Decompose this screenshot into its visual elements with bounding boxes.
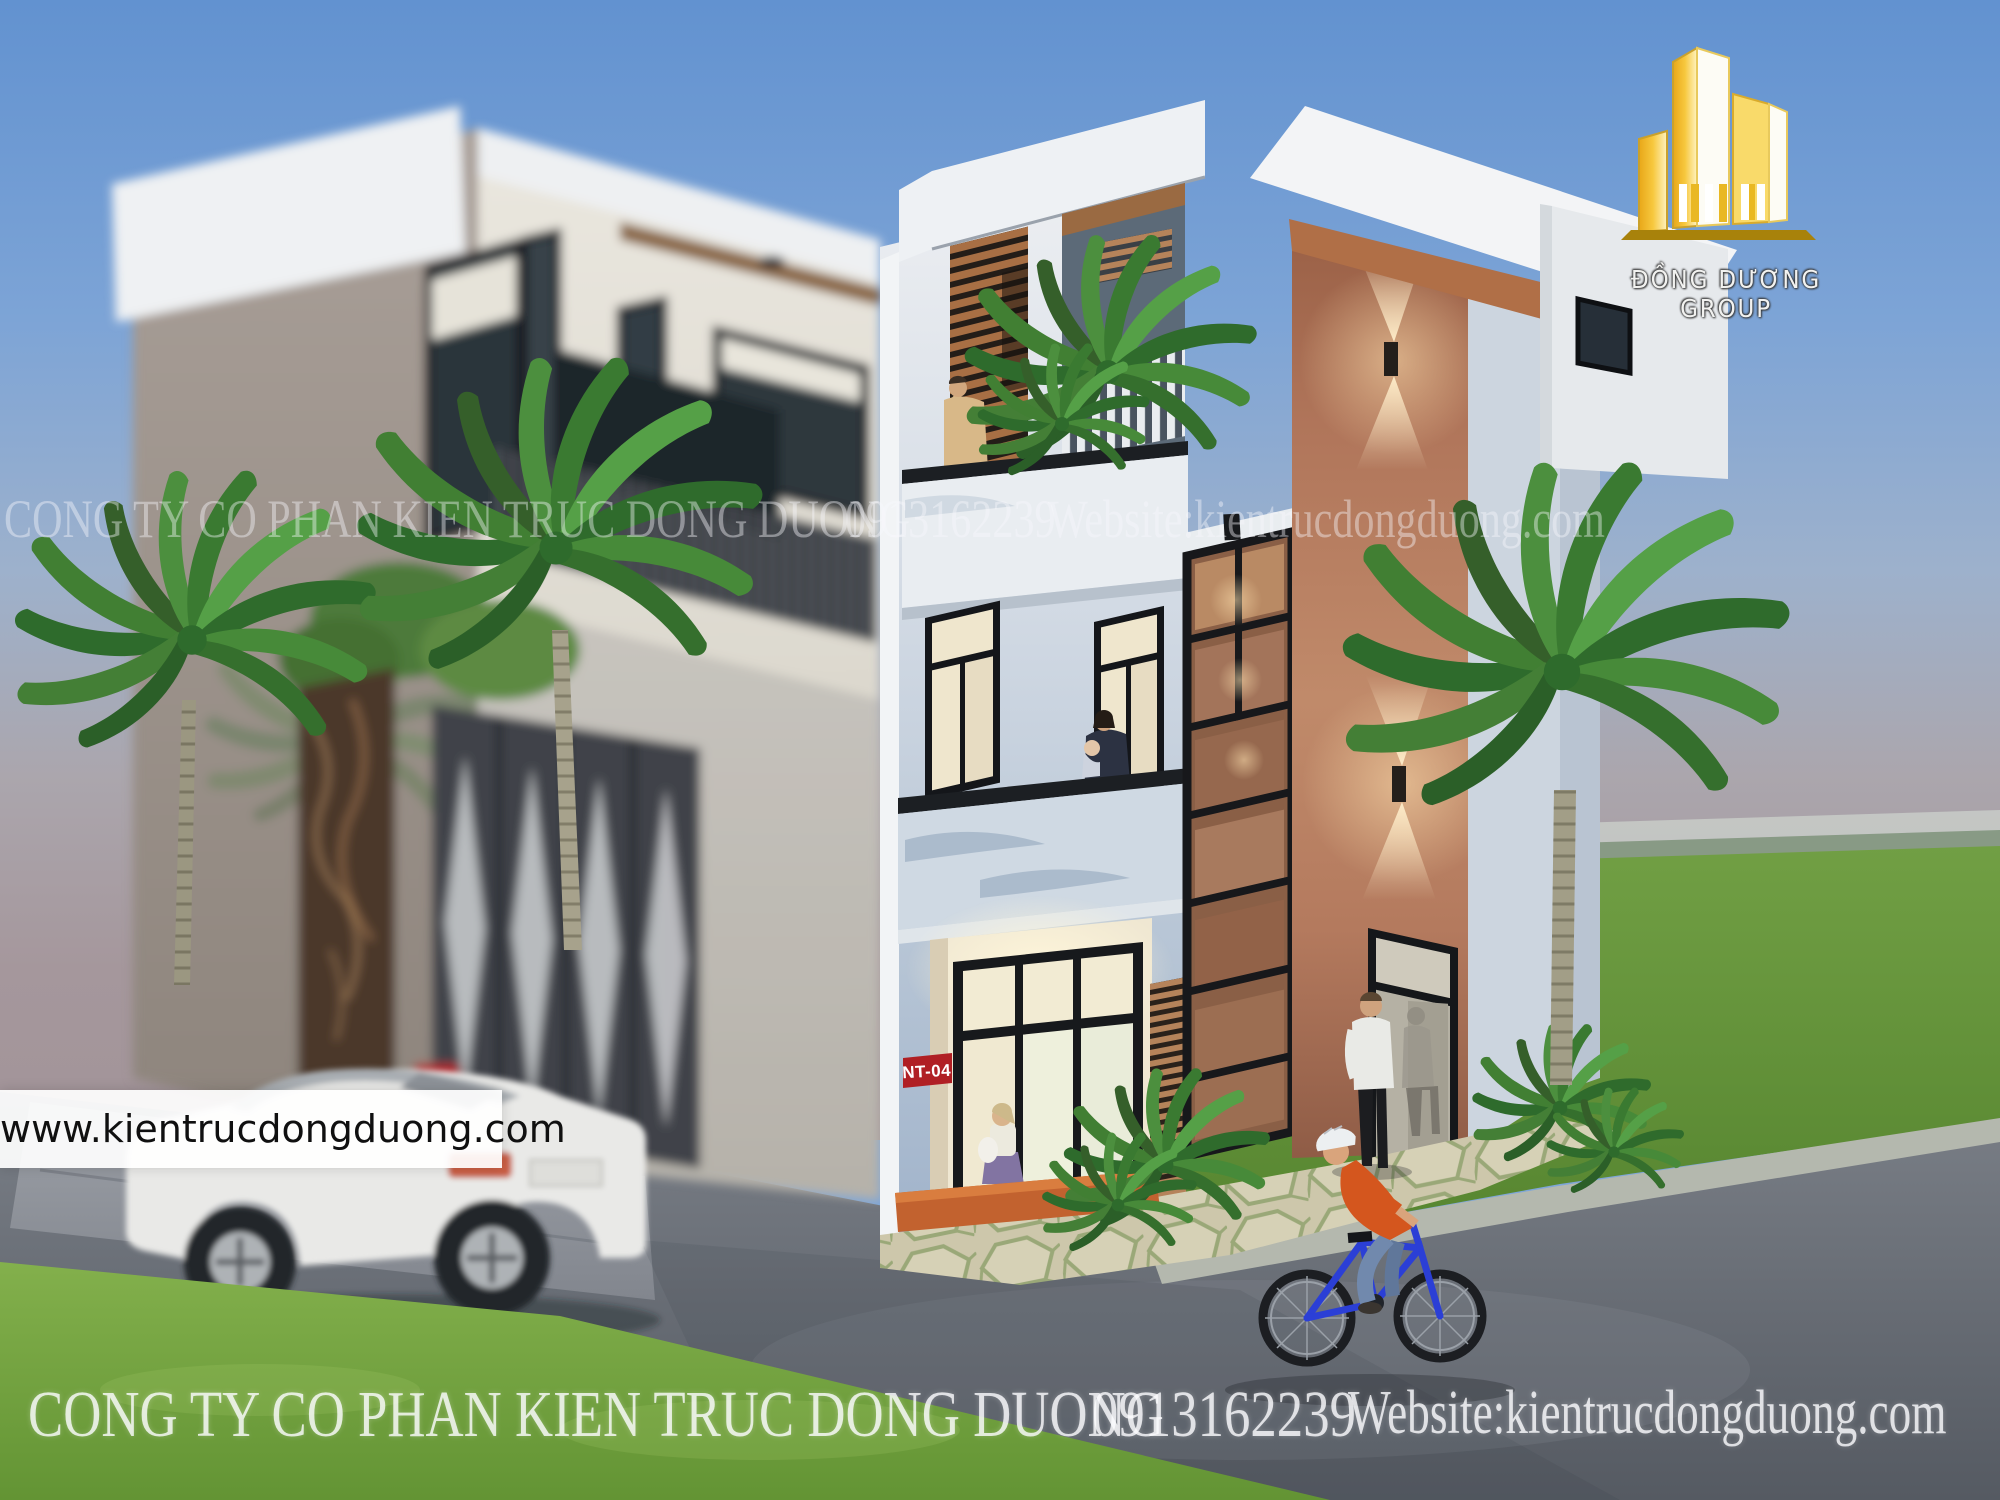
ceiling-lamp	[759, 256, 785, 268]
logo-label: ĐỒNG DƯƠNG GROUP	[1608, 265, 1844, 323]
mid-floor-window-left	[925, 601, 1000, 800]
unit-sign-label: NT-04	[902, 1061, 952, 1083]
render-canvas: NT-04	[0, 0, 2000, 1500]
company-logo: ĐỒNG DƯƠNG GROUP	[1598, 34, 1854, 314]
gold-buildings-icon	[1601, 34, 1851, 266]
brown-glass-strip	[1180, 506, 1302, 1156]
website-url-bar: www.kientrucdongduong.com	[0, 1090, 502, 1168]
website-url-text: www.kientrucdongduong.com	[0, 1090, 502, 1168]
unit-sign: NT-04	[902, 1053, 952, 1088]
